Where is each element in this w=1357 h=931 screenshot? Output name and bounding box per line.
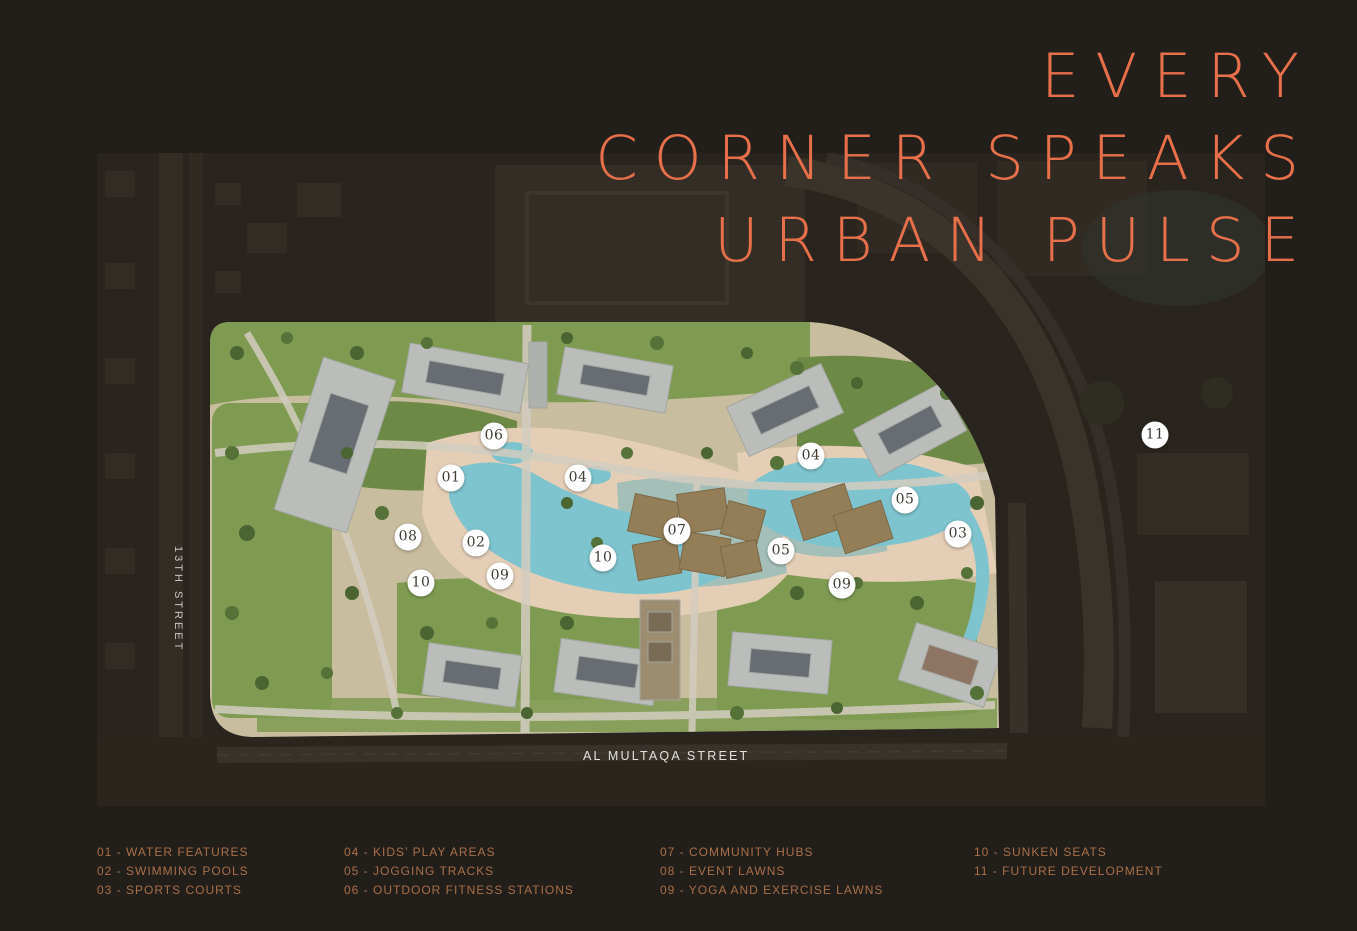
street-label-al-multaqa-street: AL MULTAQA STREET	[583, 749, 749, 763]
legend-column: 04 - KIDS’ PLAY AREAS05 - JOGGING TRACKS…	[344, 843, 574, 900]
street-label-13th-street: 13TH STREET	[172, 546, 184, 652]
legend-item-06: 06 - OUTDOOR FITNESS STATIONS	[344, 881, 574, 900]
legend-item-05: 05 - JOGGING TRACKS	[344, 862, 574, 881]
legend-item-09: 09 - YOGA AND EXERCISE LAWNS	[660, 881, 883, 900]
page-title: EVERY CORNER SPEAKS URBAN PULSE	[595, 36, 1299, 282]
legend-item-04: 04 - KIDS’ PLAY AREAS	[344, 843, 574, 862]
page-title-line-1: EVERY	[595, 36, 1315, 118]
legend-item-10: 10 - SUNKEN SEATS	[974, 843, 1163, 862]
legend-item-07: 07 - COMMUNITY HUBS	[660, 843, 883, 862]
page-title-line-3: URBAN PULSE	[595, 200, 1315, 282]
page-title-line-2: CORNER SPEAKS	[595, 118, 1315, 200]
legend-column: 07 - COMMUNITY HUBS08 - EVENT LAWNS09 - …	[660, 843, 883, 900]
legend-item-03: 03 - SPORTS COURTS	[97, 881, 249, 900]
legend-column: 10 - SUNKEN SEATS11 - FUTURE DEVELOPMENT	[974, 843, 1163, 881]
brochure-page: 13TH STREET AL MULTAQA STREET 0601040405…	[0, 0, 1357, 931]
legend-item-08: 08 - EVENT LAWNS	[660, 862, 883, 881]
legend-item-01: 01 - WATER FEATURES	[97, 843, 249, 862]
legend-column: 01 - WATER FEATURES02 - SWIMMING POOLS03…	[97, 843, 249, 900]
legend-item-11: 11 - FUTURE DEVELOPMENT	[974, 862, 1163, 881]
development-site	[197, 313, 1017, 753]
legend-item-02: 02 - SWIMMING POOLS	[97, 862, 249, 881]
